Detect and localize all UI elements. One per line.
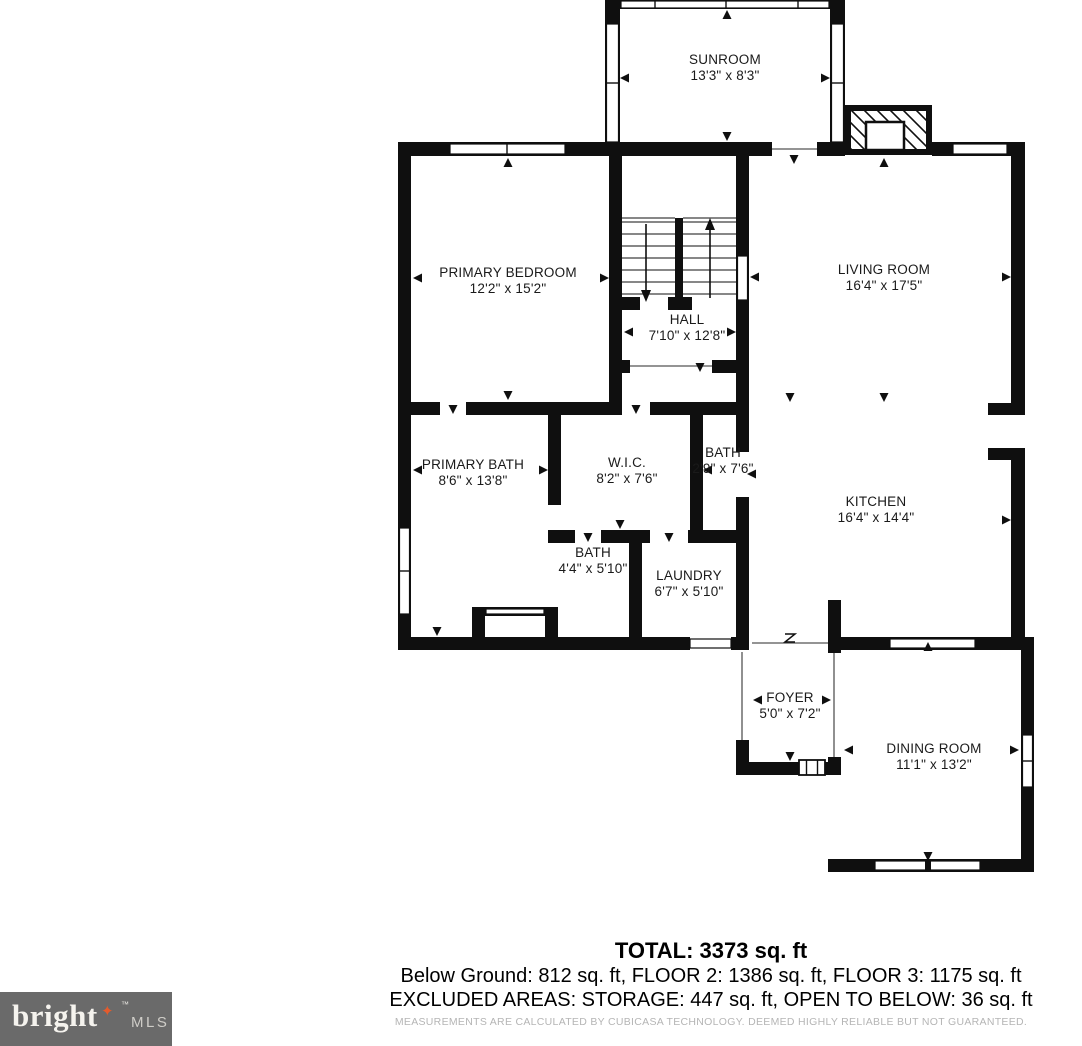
floorplan-drawing	[0, 0, 1082, 1046]
room-dims: 16'4" x 14'4"	[838, 510, 915, 526]
door-zigzag-marker	[785, 634, 795, 642]
windows	[400, 1, 1033, 870]
window-dividers	[400, 1, 1033, 775]
disclaimer-text: MEASUREMENTS ARE CALCULATED BY CUBICASA …	[395, 1016, 1027, 1028]
room-name: LAUNDRY	[655, 568, 724, 584]
room-label-primary-bath: PRIMARY BATH 8'6" x 13'8"	[422, 457, 524, 489]
floor-areas-text: Below Ground: 812 sq. ft, FLOOR 2: 1386 …	[400, 965, 1021, 988]
total-area-text: TOTAL: 3373 sq. ft	[615, 938, 807, 964]
bright-mls-logo: bright ✦ ™ MLS	[0, 992, 172, 1046]
room-name: KITCHEN	[838, 494, 915, 510]
room-dims: 16'4" x 17'5"	[838, 278, 930, 294]
room-name: PRIMARY BEDROOM	[439, 265, 577, 281]
room-label-living-room: LIVING ROOM 16'4" x 17'5"	[838, 262, 930, 294]
room-dims: 5'0" x 7'2"	[759, 706, 820, 722]
room-name: BATH	[559, 545, 628, 561]
room-dims: 8'2" x 7'6"	[596, 471, 657, 487]
excluded-areas-text: EXCLUDED AREAS: STORAGE: 447 sq. ft, OPE…	[389, 989, 1032, 1012]
room-dims: 11'1" x 13'2"	[886, 757, 981, 773]
room-name: LIVING ROOM	[838, 262, 930, 278]
room-name: BATH	[692, 445, 753, 461]
room-name: FOYER	[759, 690, 820, 706]
logo-trademark: ™	[121, 1000, 129, 1009]
room-name: HALL	[649, 312, 726, 328]
floorplan-page: SUNROOM 13'3" x 8'3" PRIMARY BEDROOM 12'…	[0, 0, 1082, 1046]
room-label-wic: W.I.C. 8'2" x 7'6"	[596, 455, 657, 487]
room-dims: 7'10" x 12'8"	[649, 328, 726, 344]
fireplace	[851, 111, 926, 150]
room-name: DINING ROOM	[886, 741, 981, 757]
room-dims: 2'9" x 7'6"	[692, 461, 753, 477]
room-label-primary-bedroom: PRIMARY BEDROOM 12'2" x 15'2"	[439, 265, 577, 297]
logo-star-icon: ✦	[101, 1002, 114, 1020]
room-label-hall: HALL 7'10" x 12'8"	[649, 312, 726, 344]
room-label-sunroom: SUNROOM 13'3" x 8'3"	[689, 52, 761, 84]
double-window-divider	[925, 860, 931, 871]
room-name: W.I.C.	[596, 455, 657, 471]
room-dims: 4'4" x 5'10"	[559, 561, 628, 577]
room-label-dining-room: DINING ROOM 11'1" x 13'2"	[886, 741, 981, 773]
room-dims: 12'2" x 15'2"	[439, 281, 577, 297]
room-name: PRIMARY BATH	[422, 457, 524, 473]
room-label-kitchen: KITCHEN 16'4" x 14'4"	[838, 494, 915, 526]
room-label-bath-upper: BATH 2'9" x 7'6"	[692, 445, 753, 477]
room-dims: 13'3" x 8'3"	[689, 68, 761, 84]
room-dims: 6'7" x 5'10"	[655, 584, 724, 600]
room-label-laundry: LAUNDRY 6'7" x 5'10"	[655, 568, 724, 600]
room-label-bath-lower: BATH 4'4" x 5'10"	[559, 545, 628, 577]
room-name: SUNROOM	[689, 52, 761, 68]
room-dims: 8'6" x 13'8"	[422, 473, 524, 489]
logo-suffix-text: MLS	[131, 1014, 169, 1031]
logo-brand-text: bright	[12, 998, 98, 1034]
room-label-foyer: FOYER 5'0" x 7'2"	[759, 690, 820, 722]
